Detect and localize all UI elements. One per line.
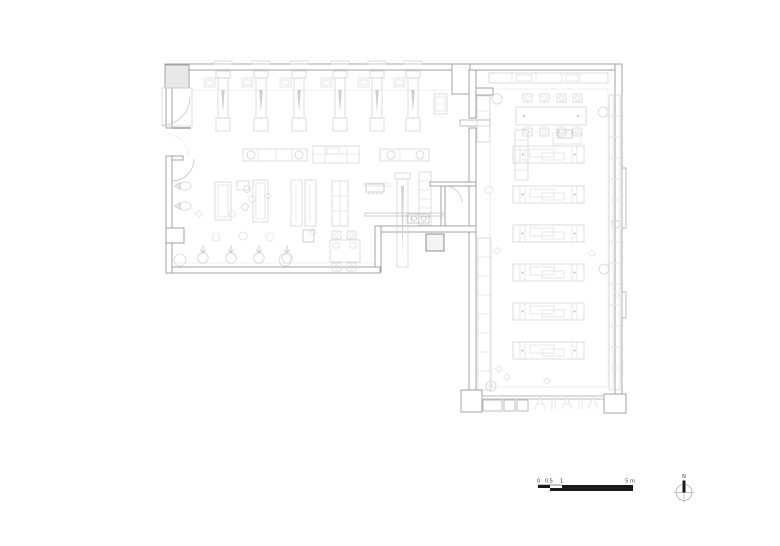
scale-bar: 0 0.5 1 5 m: [537, 479, 635, 492]
rack-unit: [254, 71, 268, 131]
right-wing-furniture: [477, 73, 620, 391]
ornament-icon: [310, 229, 317, 236]
ornament-icon: [496, 366, 503, 373]
workbench-row: [513, 225, 584, 242]
scale-tick-zero: 0: [537, 479, 540, 485]
chair-icon: [557, 94, 566, 102]
wall-cabinets: [204, 78, 405, 87]
rack-unit: [333, 71, 347, 131]
workbench-row: [513, 146, 584, 163]
door-arc-mid: [166, 134, 189, 157]
north-arrow-icon: N: [674, 474, 694, 503]
work-tables: [243, 146, 429, 163]
workbench-row: [513, 342, 584, 359]
chair-icon: [347, 231, 356, 239]
plant-icon: [254, 245, 264, 263]
south-entrance: [461, 384, 626, 413]
rack-unit: [406, 71, 420, 131]
lounge-furniture: [196, 180, 317, 236]
scale-tick-five: 5 m: [625, 479, 635, 485]
door-swings: [162, 97, 462, 203]
floor-plants: [174, 232, 292, 266]
rack-unit: [216, 71, 230, 131]
north-label: N: [682, 474, 686, 480]
armchair: [434, 94, 447, 114]
ornament-icon: [544, 378, 551, 385]
plant-icon: [198, 245, 208, 263]
floor-plan-drawing: 0 0.5 1 5 m N: [0, 0, 780, 546]
rack-unit: [370, 71, 384, 131]
door-arc-inner-room: [445, 186, 462, 203]
scale-tick-half: 0.5: [545, 479, 553, 485]
top-shelf-band: [489, 73, 608, 83]
ornament-icon: [589, 250, 596, 257]
west-wall-shelving: [477, 96, 491, 390]
ornament-icon: [494, 248, 501, 255]
dining-table: [516, 94, 586, 136]
floor-plan-sheet: 0 0.5 1 5 m N: [0, 0, 780, 546]
inner-room: [365, 182, 476, 226]
workbench-row: [513, 303, 584, 320]
door-arc-lower: [172, 159, 194, 181]
scale-tick-one: 1: [560, 479, 563, 485]
scale-segment: [538, 485, 550, 488]
scale-main-bar: [562, 485, 633, 491]
wall-fixture-icon: [175, 202, 191, 210]
chair-icon: [523, 94, 532, 102]
ornament-icon: [504, 374, 511, 381]
hall-ornaments: [485, 94, 620, 391]
chair-icon: [540, 128, 549, 136]
chair-icon: [540, 94, 549, 102]
scale-segment: [550, 488, 562, 491]
chair-icon: [573, 94, 582, 102]
wall-fixture-icon: [175, 182, 191, 190]
chair-icon: [523, 128, 532, 136]
outer-walls: [162, 64, 626, 412]
chair-icon: [332, 231, 341, 239]
ornament-icon: [196, 211, 203, 218]
printer-desk: [364, 183, 390, 195]
rack-unit: [292, 71, 306, 131]
meeting-table: [330, 231, 360, 271]
workbench-row: [513, 186, 584, 203]
plant-icon: [226, 245, 236, 263]
workbench-row: [513, 264, 584, 281]
